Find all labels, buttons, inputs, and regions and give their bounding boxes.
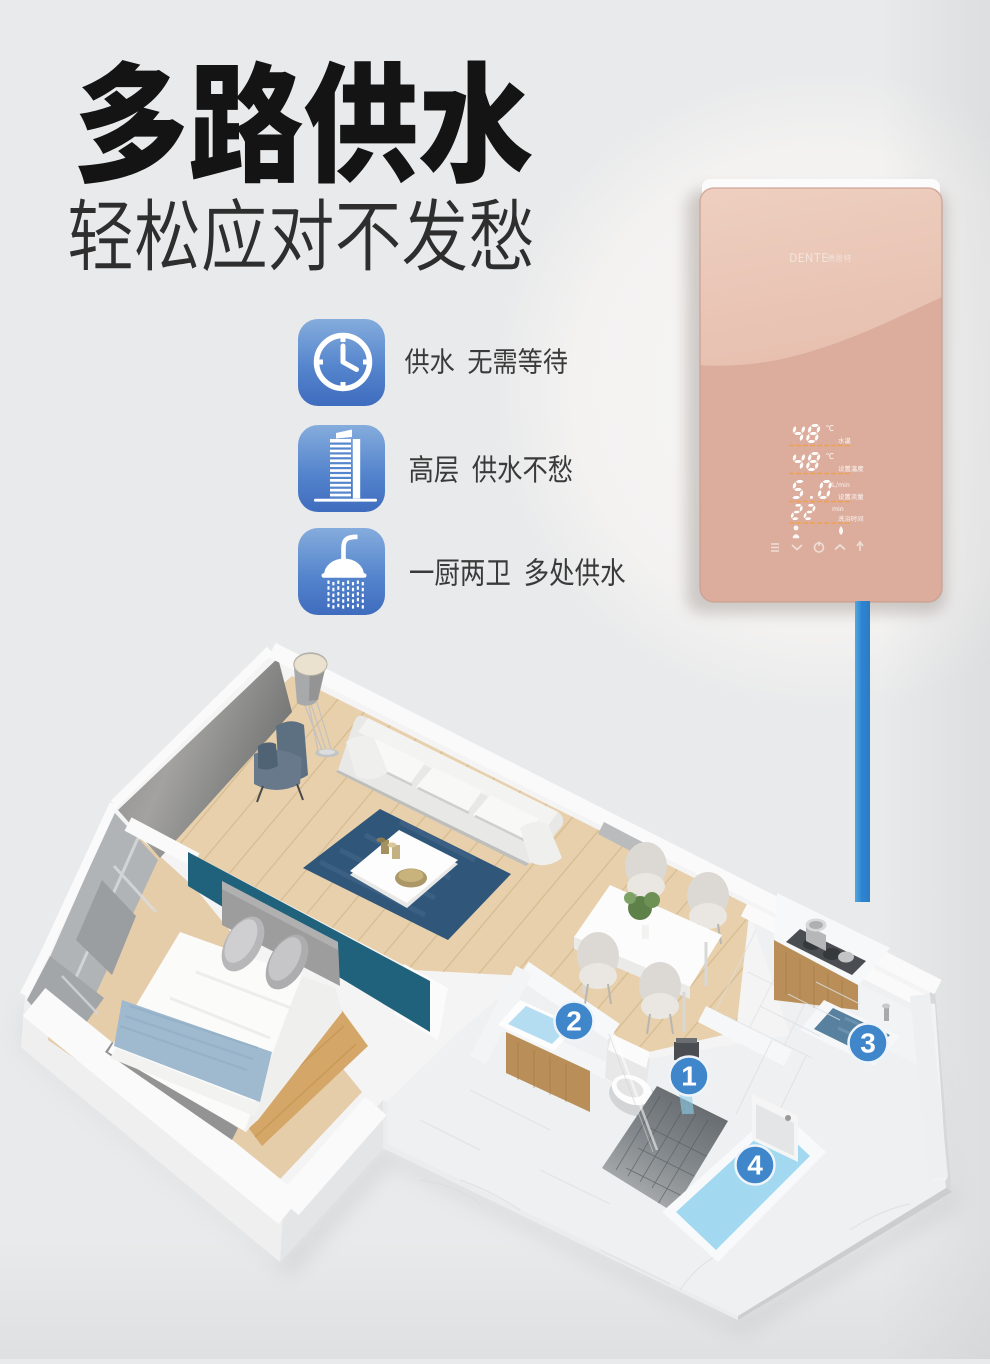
svg-text:4: 4 <box>747 1150 763 1181</box>
svg-text:3: 3 <box>860 1028 876 1059</box>
svg-text:1: 1 <box>681 1061 697 1092</box>
svg-text:2: 2 <box>566 1006 582 1037</box>
